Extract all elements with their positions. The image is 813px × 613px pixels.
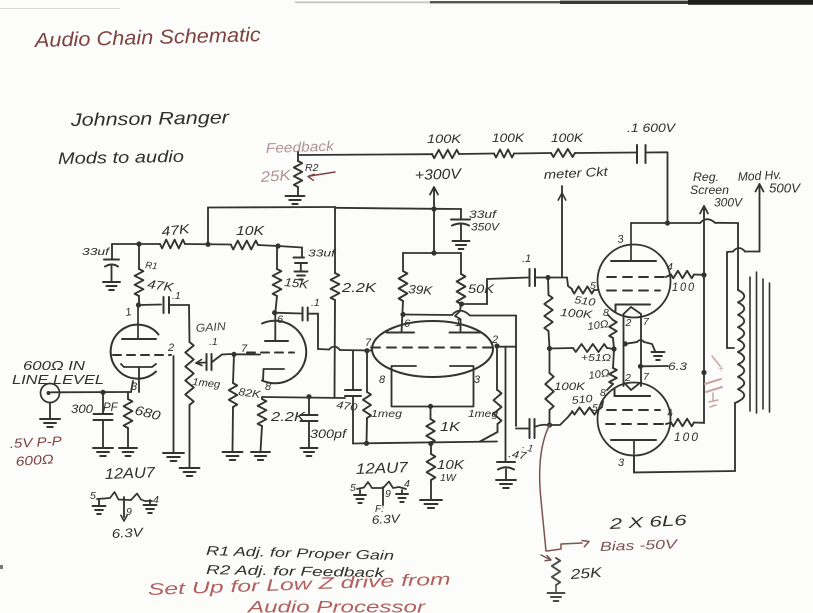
svg-text:8: 8 [379,374,386,386]
svg-text:PF: PF [103,402,119,414]
svg-text:300: 300 [71,404,94,416]
svg-text:1meg: 1meg [371,408,402,420]
svg-text:510: 510 [571,393,593,407]
svg-text:Feedback: Feedback [266,138,336,156]
svg-text:12AU7: 12AU7 [356,459,409,478]
svg-text:+300V: +300V [415,166,463,184]
svg-text:300V: 300V [714,196,743,210]
svg-text:8: 8 [600,387,606,399]
svg-text:33uf: 33uf [469,209,497,221]
svg-text:15K: 15K [284,275,310,292]
svg-text:600Ω IN: 600Ω IN [23,358,86,373]
svg-text:Mods to audio: Mods to audio [58,148,184,168]
svg-text:3: 3 [131,381,138,393]
svg-text:Reg.: Reg. [693,170,719,184]
svg-text:300pf: 300pf [310,429,348,441]
svg-text:6.3V: 6.3V [111,525,145,541]
svg-text:100K: 100K [554,381,586,393]
svg-text:· 1: · 1 [520,442,533,455]
svg-text:10K: 10K [236,224,265,238]
svg-text:100: 100 [672,282,696,294]
svg-text:100K: 100K [560,307,594,321]
svg-text:100: 100 [674,432,700,444]
svg-text:10K: 10K [437,458,465,472]
svg-text:4: 4 [667,261,673,273]
svg-text:Johnson Ranger: Johnson Ranger [70,107,231,130]
svg-text:350V: 350V [471,222,501,234]
svg-text:1: 1 [455,317,461,329]
svg-text:9: 9 [385,488,391,500]
svg-text:R2: R2 [305,162,319,174]
svg-text:33uf: 33uf [308,248,336,260]
svg-text:.1: .1 [311,297,320,309]
svg-text:47K: 47K [161,221,192,239]
svg-text:GAIN: GAIN [195,321,226,335]
svg-text:1K: 1K [440,420,461,434]
svg-text:2.2K: 2.2K [341,280,378,295]
svg-text:5: 5 [590,280,596,292]
svg-text:600Ω: 600Ω [15,451,54,469]
svg-text:Bias -50V: Bias -50V [600,536,679,554]
svg-text:5: 5 [90,490,96,502]
svg-text:50K: 50K [468,282,495,296]
svg-text:.5V P-P: .5V P-P [9,433,62,451]
svg-text:5: 5 [350,482,356,494]
svg-text:6.3: 6.3 [668,361,688,373]
svg-text:.1: .1 [209,336,218,348]
svg-text:100K: 100K [427,132,462,146]
svg-text:100K: 100K [551,131,584,145]
svg-text:5: 5 [592,402,598,414]
svg-text:.1: .1 [172,290,181,302]
svg-text:25K: 25K [569,564,603,582]
svg-text:2: 2 [167,342,174,354]
svg-text:25K: 25K [259,167,292,186]
svg-text:6: 6 [404,318,411,330]
svg-text:Audio Processor: Audio Processor [247,599,428,613]
svg-text:12AU7: 12AU7 [105,464,156,483]
svg-text:.1 600V: .1 600V [627,123,677,135]
svg-text:3: 3 [474,374,481,386]
svg-text:500V: 500V [769,182,802,196]
svg-text:6.3V: 6.3V [371,511,401,527]
svg-text:+: + [718,364,724,375]
svg-text:8: 8 [603,307,609,319]
svg-text:9: 9 [126,506,132,518]
svg-text:33uf: 33uf [82,246,110,258]
svg-text:8: 8 [265,381,272,393]
svg-text:4: 4 [404,478,410,490]
svg-text:2: 2 [625,317,632,329]
svg-text:LINE LEVEL: LINE LEVEL [12,372,104,387]
svg-text:7: 7 [365,337,372,349]
svg-text:+51Ω: +51Ω [581,352,611,364]
svg-text:3: 3 [618,457,625,469]
svg-text:1W: 1W [440,472,457,484]
svg-text:.1: .1 [522,253,531,265]
svg-text:100K: 100K [492,131,525,145]
svg-text:1meg: 1meg [468,408,498,420]
svg-text:R1: R1 [145,260,158,272]
svg-text:39K: 39K [408,282,434,298]
svg-text:6: 6 [277,314,284,326]
